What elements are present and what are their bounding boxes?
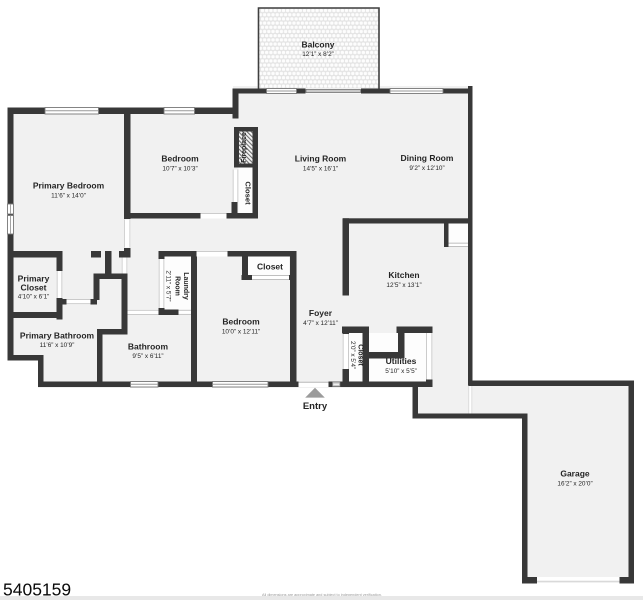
svg-text:Entry: Entry bbox=[303, 401, 328, 412]
svg-text:4’7” x 12’11”: 4’7” x 12’11” bbox=[303, 320, 338, 327]
svg-text:2’0” x 5’4”: 2’0” x 5’4” bbox=[349, 341, 356, 369]
svg-text:4’10” x 6’1”: 4’10” x 6’1” bbox=[18, 294, 50, 301]
svg-text:Balcony: Balcony bbox=[301, 40, 334, 50]
svg-text:9’5” x 6’11”: 9’5” x 6’11” bbox=[132, 353, 163, 360]
svg-text:10’0” x 12’11”: 10’0” x 12’11” bbox=[222, 329, 260, 336]
svg-text:Primary Bathroom: Primary Bathroom bbox=[20, 331, 95, 341]
svg-text:Fireplace: Fireplace bbox=[241, 132, 248, 163]
svg-text:Bedroom: Bedroom bbox=[161, 154, 199, 164]
svg-text:Garage: Garage bbox=[560, 469, 590, 479]
svg-text:Dining Room: Dining Room bbox=[401, 153, 454, 163]
svg-text:Closet: Closet bbox=[21, 283, 47, 293]
svg-text:9’2” x 12’10”: 9’2” x 12’10” bbox=[409, 165, 444, 172]
svg-text:Living Room: Living Room bbox=[295, 154, 347, 164]
svg-text:Laundry: Laundry bbox=[182, 272, 189, 300]
svg-text:Bathroom: Bathroom bbox=[128, 342, 169, 352]
svg-text:Primary Bedroom: Primary Bedroom bbox=[33, 181, 105, 191]
svg-text:11’6” x 10’9”: 11’6” x 10’9” bbox=[40, 342, 75, 349]
svg-text:Bedroom: Bedroom bbox=[222, 317, 260, 327]
svg-text:Foyer: Foyer bbox=[309, 308, 333, 318]
svg-text:Room: Room bbox=[174, 276, 181, 296]
svg-text:Kitchen: Kitchen bbox=[388, 270, 419, 280]
svg-text:16’2” x 20’0”: 16’2” x 20’0” bbox=[557, 481, 592, 488]
svg-text:Closet: Closet bbox=[357, 344, 364, 366]
svg-text:5’10” x 5’5”: 5’10” x 5’5” bbox=[385, 368, 417, 375]
svg-text:Closet: Closet bbox=[257, 262, 283, 272]
svg-text:Utilities: Utilities bbox=[386, 356, 417, 366]
svg-text:11’6” x 14’0”: 11’6” x 14’0” bbox=[51, 193, 86, 200]
svg-text:Closet: Closet bbox=[244, 181, 253, 205]
svg-text:12’1” x 8’2”: 12’1” x 8’2” bbox=[302, 51, 334, 58]
svg-text:10’7” x 10’3”: 10’7” x 10’3” bbox=[162, 166, 197, 173]
svg-text:14’5” x 16’1”: 14’5” x 16’1” bbox=[303, 166, 338, 173]
svg-text:12’5” x 13’1”: 12’5” x 13’1” bbox=[386, 282, 421, 289]
svg-text:2’11” x 5’7”: 2’11” x 5’7” bbox=[165, 270, 172, 301]
